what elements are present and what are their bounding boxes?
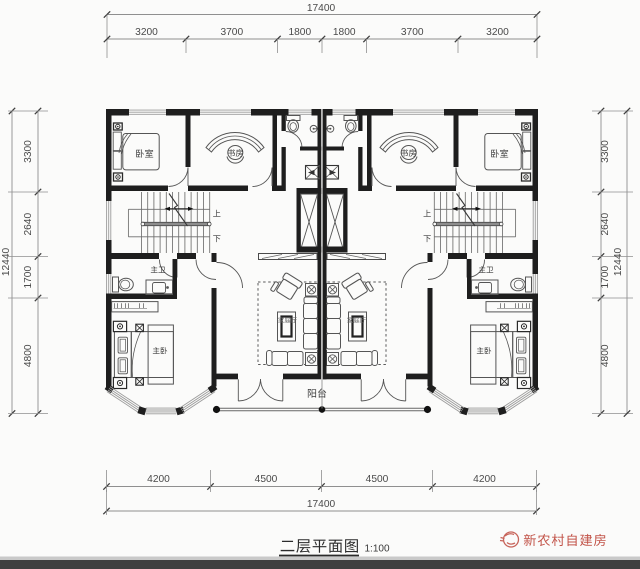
svg-text:3200: 3200 — [135, 27, 158, 38]
svg-text:1700: 1700 — [23, 266, 34, 289]
svg-text:3300: 3300 — [23, 140, 34, 163]
svg-text:1700: 1700 — [600, 266, 611, 289]
svg-text:4800: 4800 — [600, 344, 611, 367]
svg-text:4200: 4200 — [473, 474, 496, 485]
svg-text:3700: 3700 — [220, 27, 243, 38]
svg-text:4500: 4500 — [366, 474, 389, 485]
svg-text:3200: 3200 — [486, 27, 509, 38]
svg-text:1:100: 1:100 — [364, 544, 389, 555]
svg-text:12440: 12440 — [613, 248, 624, 277]
svg-text:17400: 17400 — [307, 3, 336, 14]
svg-text:2640: 2640 — [600, 213, 611, 236]
svg-text:4200: 4200 — [147, 474, 170, 485]
svg-text:4800: 4800 — [23, 344, 34, 367]
svg-text:3700: 3700 — [401, 27, 424, 38]
svg-text:2640: 2640 — [23, 213, 34, 236]
svg-text:17400: 17400 — [307, 499, 336, 510]
svg-text:1800: 1800 — [288, 27, 311, 38]
svg-text:3300: 3300 — [600, 140, 611, 163]
svg-text:12440: 12440 — [1, 248, 12, 277]
svg-text:1800: 1800 — [333, 27, 356, 38]
svg-text:4500: 4500 — [255, 474, 278, 485]
